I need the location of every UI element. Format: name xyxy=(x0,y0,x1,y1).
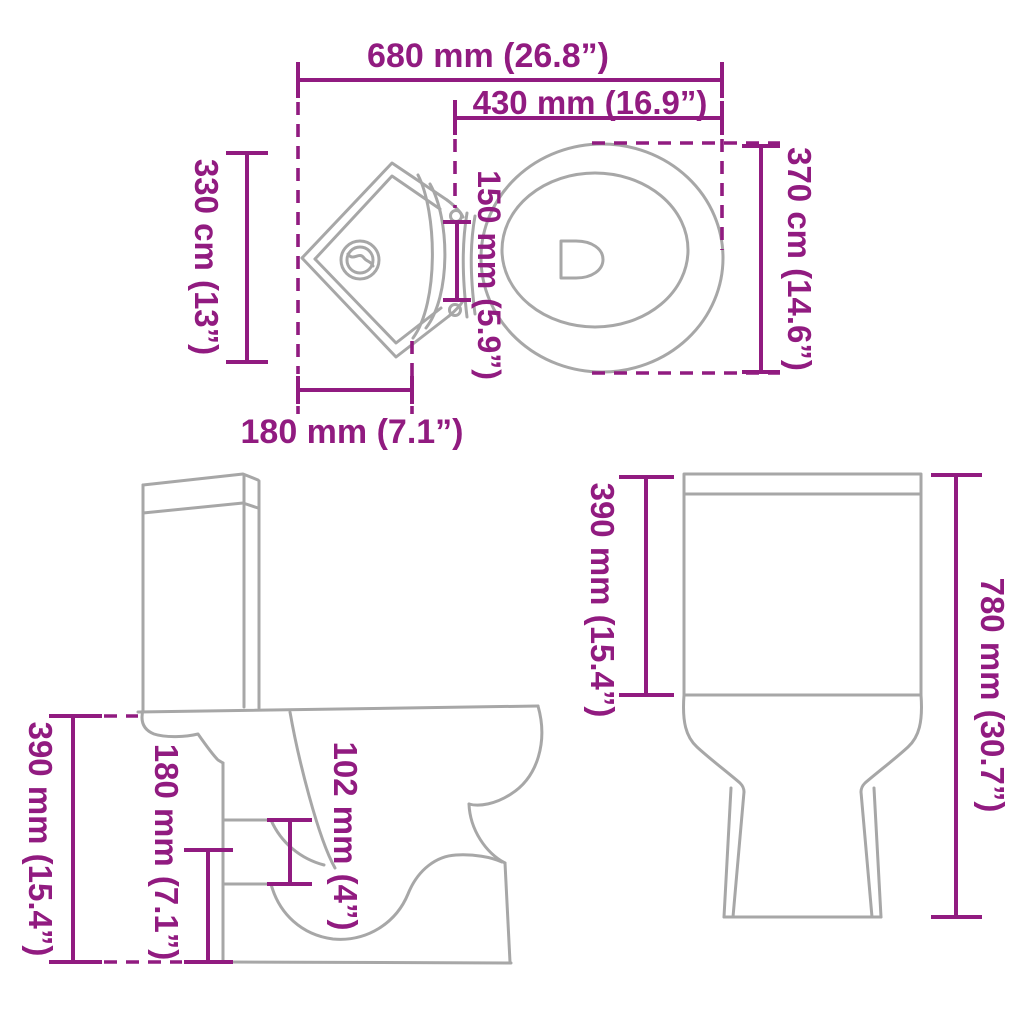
hinge-bolt-top xyxy=(451,211,462,222)
dim-label-total-height: 780 mm (30.7”) xyxy=(974,570,1010,820)
dim-label-tank-front-width: 180 mm (7.1”) xyxy=(212,414,492,450)
dim-label-bowl-depth: 370 cm (14.6”) xyxy=(781,134,817,384)
top-view-drawing xyxy=(302,144,723,372)
lid-recess xyxy=(561,241,603,278)
dim-label-seat-width: 430 mm (16.9”) xyxy=(440,85,740,121)
dim-label-hinge-gap: 150 mm (5.9”) xyxy=(471,165,507,385)
dim-label-outlet-height: 180 mm (7.1”) xyxy=(148,737,184,967)
dim-label-outlet-size: 102 mm (4”) xyxy=(327,736,363,936)
dim-label-cistern-height: 390 mm (15.4”) xyxy=(584,475,620,725)
dim-label-tank-side-depth: 330 cm (13”) xyxy=(188,142,224,372)
dim-label-overall-width: 680 mm (26.8”) xyxy=(288,38,688,74)
front-view-drawing xyxy=(684,474,922,917)
dimension-diagram: 680 mm (26.8”) 430 mm (16.9”) 330 cm (13… xyxy=(0,0,1024,1024)
dim-label-seat-height: 390 mm (15.4”) xyxy=(22,714,58,964)
